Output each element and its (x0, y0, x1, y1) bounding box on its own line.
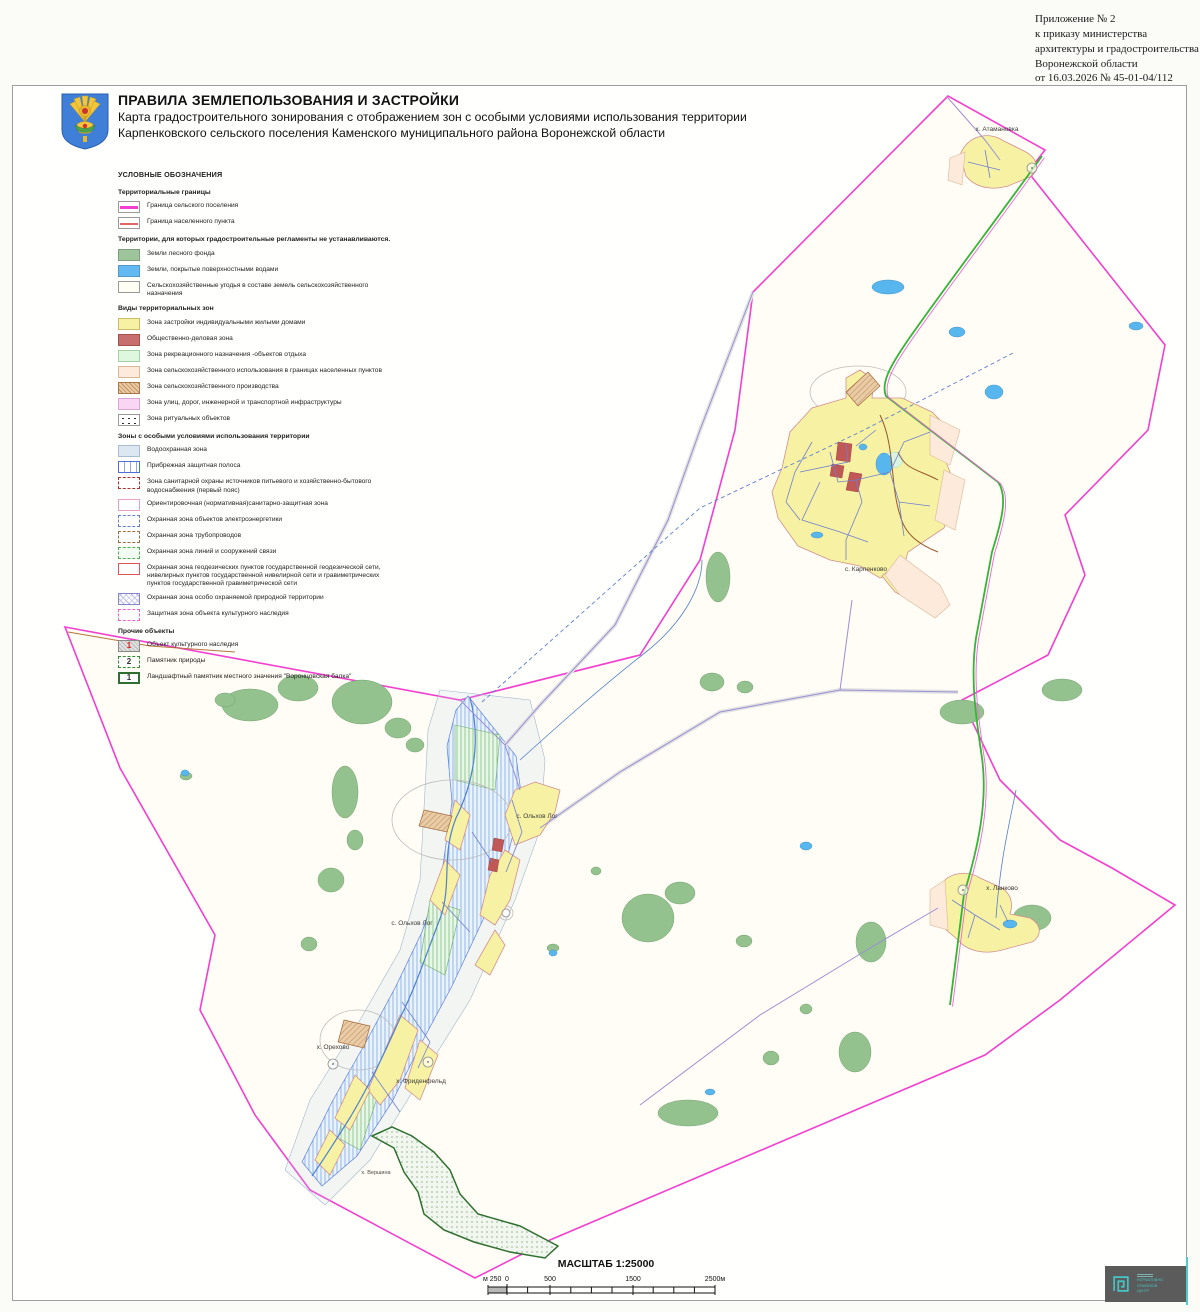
legend-item-label: Граница сельского поселения (147, 201, 238, 210)
legend-item-label: Охранная зона трубопроводов (147, 531, 241, 540)
legend-item: Зона рекреационного назначения -объектов… (118, 350, 403, 362)
map-header: ПРАВИЛА ЗЕМЛЕПОЛЬЗОВАНИЯ И ЗАСТРОЙКИ Кар… (118, 92, 838, 140)
annotation-line: к приказу министерства (1035, 27, 1200, 42)
legend-item-label: Прибрежная защитная полоса (147, 461, 240, 470)
sw-agro-prod-swatch (118, 382, 140, 394)
legend-item: Охранная зона трубопроводов (118, 531, 403, 543)
legend-item: Зона сельскохозяйственного использования… (118, 366, 403, 378)
legend-item-label: Объект культурного наследия (147, 640, 238, 649)
legend-item: Охранная зона объектов электроэнергетики (118, 515, 403, 527)
legend-item: Зона застройки индивидуальными жилыми до… (118, 318, 403, 330)
sw-nature-swatch: 2 (118, 656, 140, 668)
legend-section-title: Виды территориальных зон (118, 305, 403, 313)
legend-item: Земли, покрытые поверхностными водами (118, 265, 403, 277)
legend-sections: Территориальные границыГраница сельского… (118, 189, 403, 684)
sw-pipe-swatch (118, 531, 140, 543)
stamp-text-line: НОРМАТИВНО- (1137, 1278, 1164, 1282)
page-subtitle-1: Карта градостроительного зонирования с о… (118, 110, 838, 124)
sw-shore-swatch (118, 461, 140, 473)
legend-item-label: Зона рекреационного назначения -объектов… (147, 350, 306, 359)
legend-item: Сельскохозяйственные угодья в составе зе… (118, 281, 403, 298)
sw-szz-swatch (118, 499, 140, 511)
legend-item-label: Ориентировочная (нормативная)санитарно-з… (147, 499, 328, 508)
legend-item: Охранная зона линий и сооружений связи (118, 547, 403, 559)
sw-zso1-swatch (118, 477, 140, 489)
legend-item: Зона ритуальных объектов (118, 414, 403, 426)
scale-bar: м 250 0 500 1500 2500м (481, 1272, 731, 1302)
scale-tick-label: м 250 (483, 1276, 502, 1283)
legend-item: Охранная зона геодезических пунктов госу… (118, 563, 403, 589)
order-annotation: Приложение № 2 к приказу министерства ар… (1035, 12, 1200, 86)
sw-okn-swatch: 1 (118, 640, 140, 652)
annotation-line: Приложение № 2 (1035, 12, 1200, 27)
scale-tick-label: 500 (544, 1276, 556, 1283)
legend-item-label: Ландшафтный памятник местного значения "… (147, 672, 351, 681)
legend-item: Граница сельского поселения (118, 201, 403, 213)
legend-section-title: Территориальные границы (118, 189, 403, 197)
publisher-logo-icon (1110, 1273, 1132, 1295)
legend-item: Охранная зона особо охраняемой природной… (118, 593, 403, 605)
legend-item-label: Охранная зона линий и сооружений связи (147, 547, 276, 556)
sw-biz-swatch (118, 334, 140, 346)
legend-item-label: Зона улиц, дорог, инженерной и транспорт… (147, 398, 342, 407)
sw-agro-swatch (118, 281, 140, 293)
legend-item-label: Зона санитарной охраны источников питьев… (147, 477, 403, 494)
stamp-decor-line (1137, 1274, 1153, 1275)
sw-res-swatch (118, 318, 140, 330)
sw-oopt-swatch (118, 593, 140, 605)
annotation-line: архитектуры и градостроительства (1035, 42, 1200, 57)
stamp-text-line: ПРАВОВОЙ (1137, 1284, 1164, 1288)
sw-comm-swatch (118, 547, 140, 559)
stamp-text-line: ЦЕНТР (1137, 1289, 1164, 1293)
legend-item: Земли лесного фонда (118, 249, 403, 261)
legend-item-label: Памятник природы (147, 656, 205, 665)
legend-item: Граница населенного пункта (118, 217, 403, 229)
label-fridenfeld: х. Фриденфельд (396, 1078, 446, 1085)
label-lankovo: х. Ланково (986, 885, 1018, 892)
legend-item: Защитная зона объекта культурного наслед… (118, 609, 403, 621)
sw-rec-swatch (118, 350, 140, 362)
legend-item: Ориентировочная (нормативная)санитарно-з… (118, 499, 403, 511)
label-karpenkovo: с. Карпенково (845, 566, 888, 573)
legend-item-label: Охранная зона объектов электроэнергетики (147, 515, 282, 524)
legend-item: 1Объект культурного наследия (118, 640, 403, 652)
legend: УСЛОВНЫЕ ОБОЗНАЧЕНИЯ Территориальные гра… (118, 170, 403, 688)
scale-tick-label: 2500м (705, 1276, 726, 1283)
scale-tick-label: 1500 (625, 1276, 641, 1283)
sw-agro-set-swatch (118, 366, 140, 378)
sw-line-red-swatch (118, 217, 140, 229)
publisher-stamp-text: НОРМАТИВНО- ПРАВОВОЙ ЦЕНТР (1137, 1274, 1164, 1293)
legend-heading: УСЛОВНЫЕ ОБОЗНАЧЕНИЯ (118, 170, 403, 179)
scale-tick-label: 0 (505, 1276, 509, 1283)
legend-item-label: Граница населенного пункта (147, 217, 235, 226)
sw-wpz-swatch (118, 445, 140, 457)
sw-power-swatch (118, 515, 140, 527)
sw-line-magenta-swatch (118, 201, 140, 213)
coat-of-arms (60, 92, 110, 150)
sw-geo-swatch (118, 563, 140, 575)
legend-item: Прибрежная защитная полоса (118, 461, 403, 473)
legend-section-title: Зоны с особыми условиями использования т… (118, 433, 403, 441)
legend-item: Зона улиц, дорог, инженерной и транспорт… (118, 398, 403, 410)
sw-ritual-swatch (118, 414, 140, 426)
publisher-stamp: НОРМАТИВНО- ПРАВОВОЙ ЦЕНТР (1105, 1266, 1187, 1302)
scale-block: МАСШТАБ 1:25000 м 250 0 500 1500 2500м (478, 1258, 734, 1307)
legend-section-title: Территории, для которых градостроительны… (118, 236, 403, 244)
legend-item-label: Земли, покрытые поверхностными водами (147, 265, 278, 274)
legend-item: Зона сельскохозяйственного производства (118, 382, 403, 394)
label-orekhovo: х. Орехово (317, 1044, 350, 1051)
legend-item-label: Водоохранная зона (147, 445, 207, 454)
legend-item-label: Зона застройки индивидуальными жилыми до… (147, 318, 305, 327)
legend-item-label: Охранная зона особо охраняемой природной… (147, 593, 324, 602)
sw-okn-protect-swatch (118, 609, 140, 621)
legend-item-label: Земли лесного фонда (147, 249, 215, 258)
sw-water-swatch (118, 265, 140, 277)
label-olkhov-log-2: с. Ольхов Лог (391, 920, 433, 927)
sw-forest-swatch (118, 249, 140, 261)
annotation-line: от 16.03.2026 № 45-01-04/112 (1035, 71, 1200, 86)
legend-section-title: Прочие объекты (118, 628, 403, 636)
legend-item-label: Защитная зона объекта культурного наслед… (147, 609, 289, 618)
sw-transport-swatch (118, 398, 140, 410)
legend-item-label: Охранная зона геодезических пунктов госу… (147, 563, 403, 589)
page-title: ПРАВИЛА ЗЕМЛЕПОЛЬЗОВАНИЯ И ЗАСТРОЙКИ (118, 92, 838, 108)
legend-item-label: Зона ритуальных объектов (147, 414, 230, 423)
legend-item-label: Сельскохозяйственные угодья в составе зе… (147, 281, 403, 298)
legend-item: Водоохранная зона (118, 445, 403, 457)
annotation-line: Воронежской области (1035, 57, 1200, 72)
legend-item-label: Зона сельскохозяйственного использования… (147, 366, 382, 375)
sw-landscape-swatch: 1 (118, 672, 140, 684)
label-olkhov-log-1: с. Ольхов Лог (516, 813, 558, 820)
legend-item-label: Общественно-деловая зона (147, 334, 233, 343)
page-subtitle-2: Карпенковского сельского поселения Камен… (118, 126, 838, 140)
legend-item: Зона санитарной охраны источников питьев… (118, 477, 403, 494)
label-vershina: х. Вершина (361, 1170, 391, 1176)
sheet-edge-mark (1186, 1257, 1188, 1305)
legend-item-label: Зона сельскохозяйственного производства (147, 382, 279, 391)
legend-item: Общественно-деловая зона (118, 334, 403, 346)
legend-item: 2Памятник природы (118, 656, 403, 668)
scale-title: МАСШТАБ 1:25000 (478, 1258, 734, 1270)
label-atamanovka: х. Атамановка (976, 126, 1019, 133)
stamp-decor-line (1137, 1276, 1153, 1277)
legend-item: 1Ландшафтный памятник местного значения … (118, 672, 403, 684)
